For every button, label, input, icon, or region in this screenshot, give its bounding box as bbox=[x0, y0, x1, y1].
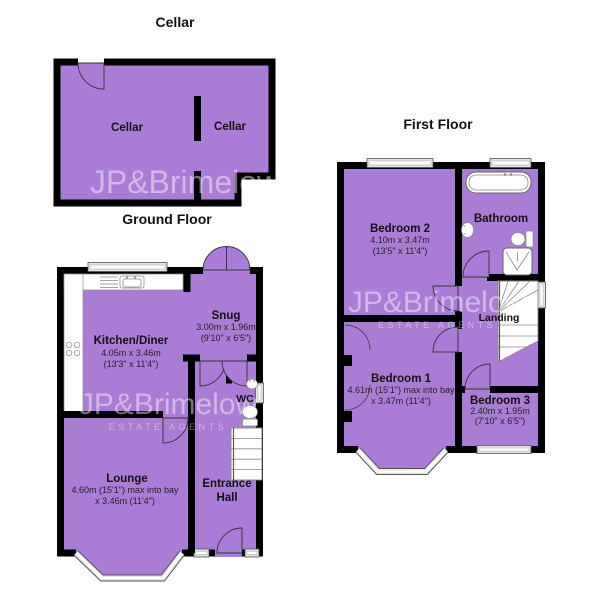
snug-label: Snug bbox=[212, 310, 241, 322]
ground-floor-title: Ground Floor bbox=[122, 211, 212, 227]
chimney-stub-bottom bbox=[341, 411, 352, 422]
chimney-stub-top bbox=[341, 355, 352, 366]
bathroom-window bbox=[490, 159, 531, 168]
watermark: JP&Brimelow bbox=[90, 164, 281, 200]
landing-label: Landing bbox=[479, 312, 520, 324]
kitchen-snug-wall-stub bbox=[184, 267, 191, 292]
watermark-sub: ESTATE AGENTS bbox=[109, 422, 227, 432]
bathroom-label: Bathroom bbox=[474, 213, 528, 225]
bedroom2-label: Bedroom 2 bbox=[370, 223, 430, 235]
bedroom2-window bbox=[367, 159, 433, 168]
cellar-room-right-label: Cellar bbox=[214, 121, 246, 133]
cellar-divider-wall-top bbox=[194, 96, 201, 141]
kitchen-window bbox=[88, 263, 167, 272]
lounge-dims-line1: 4.60m (15'1") max into bay bbox=[72, 485, 179, 495]
first-floor-plan: First Floor bbox=[337, 116, 546, 472]
shower-icon bbox=[503, 248, 532, 275]
entrance-hall-label-line2: Hall bbox=[216, 492, 237, 504]
cellar-plan: Cellar JP&Brimelow Cellar Cellar bbox=[57, 14, 281, 203]
snug-french-door-right-arc bbox=[227, 247, 251, 271]
bedroom1-dims-line1: 4.61m (15'1") max into bay bbox=[348, 385, 455, 395]
bathroom-sink-icon bbox=[462, 223, 474, 238]
ground-floor-plan: Ground Floor bbox=[57, 211, 264, 578]
cellar-room-left-label: Cellar bbox=[111, 122, 143, 134]
wc-label: WC bbox=[236, 393, 254, 405]
bedroom3-north-wall-left bbox=[455, 386, 465, 393]
bedroom3-window bbox=[477, 446, 531, 454]
entrance-hall-label-line1: Entrance bbox=[202, 478, 251, 490]
bedroom2-east-wall bbox=[455, 165, 462, 286]
front-door-sidelight-left bbox=[194, 549, 209, 557]
bedroom3-north-wall-right bbox=[490, 386, 545, 393]
bedroom2-dims-metric: 4.10m x 3.47m bbox=[370, 235, 430, 245]
cellar-title: Cellar bbox=[156, 14, 195, 30]
bedroom1-dims-line2: x 3.47m (11'4") bbox=[371, 396, 431, 406]
staircase bbox=[231, 428, 262, 480]
floorplan-page: Cellar JP&Brimelow Cellar Cellar Ground … bbox=[0, 0, 600, 600]
front-door-sidelight-right bbox=[245, 549, 259, 557]
snug-dims-metric: 3.00m x 1.96m bbox=[196, 322, 256, 332]
bedroom3-dims-imperial: (7'10" x 6'5") bbox=[475, 416, 525, 426]
lounge-label: Lounge bbox=[106, 473, 148, 485]
bedroom3-dims-metric: 2.40m x 1.95m bbox=[470, 406, 530, 416]
first-floor-title: First Floor bbox=[403, 116, 473, 132]
snug-french-door-left-arc bbox=[203, 247, 227, 271]
lounge-dims-line2: x 3.46m (11'4") bbox=[95, 496, 155, 506]
bedroom2-dims-imperial: (13'5" x 11'4") bbox=[373, 246, 428, 256]
bathroom-wall-junction bbox=[455, 274, 462, 281]
bath-icon bbox=[466, 172, 531, 193]
hall-wall-right bbox=[247, 355, 263, 362]
hall-west-wall bbox=[188, 355, 195, 554]
floorplan-svg: Cellar JP&Brimelow Cellar Cellar Ground … bbox=[0, 0, 600, 600]
snug-dims-imperial: (9'10" x 6'5") bbox=[201, 333, 251, 343]
kitchen-dims-metric: 4.05m x 3.46m bbox=[101, 348, 161, 358]
kitchen-dims-imperial: (13'3" x 11'4") bbox=[104, 359, 159, 369]
kitchen-label: Kitchen/Diner bbox=[94, 335, 169, 347]
bedroom1-label: Bedroom 1 bbox=[371, 373, 432, 385]
watermark: JP&Brimelow bbox=[79, 388, 258, 421]
bedroom1-east-wall bbox=[455, 352, 462, 450]
bathroom-toilet-icon bbox=[511, 231, 533, 247]
landing-window bbox=[538, 282, 546, 308]
